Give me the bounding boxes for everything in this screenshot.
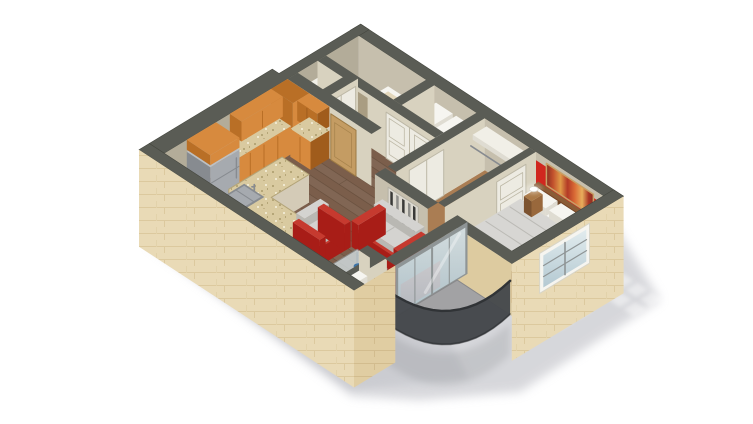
armchair-arm-front [345,221,351,251]
faucet-head [251,186,254,188]
sofa-arm-side [352,221,359,251]
lamp [529,186,538,191]
apartment-3d-floorplan [0,0,753,424]
floorplan-render [0,0,753,424]
